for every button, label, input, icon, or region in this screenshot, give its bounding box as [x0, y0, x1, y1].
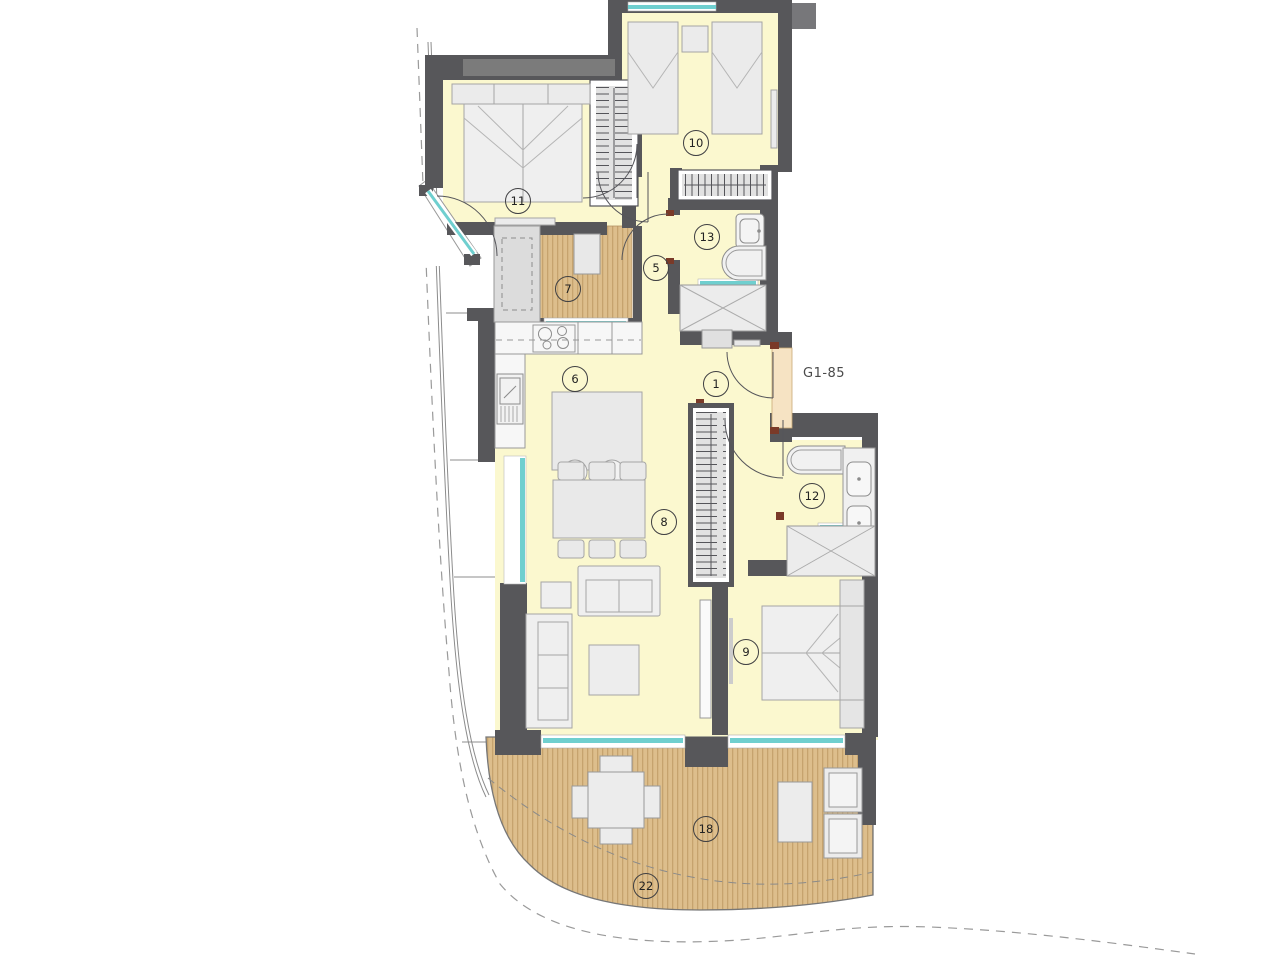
- room-marker-10: 10: [683, 130, 709, 156]
- room-marker-1: 1: [703, 371, 729, 397]
- unit-label: G1-85: [803, 366, 845, 381]
- room-marker-11: 11: [505, 188, 531, 214]
- room-marker-13: 13: [694, 224, 720, 250]
- room-marker-22: 22: [633, 873, 659, 899]
- room-marker-5: 5: [643, 255, 669, 281]
- wardrobe-bedroom-10: [678, 170, 772, 200]
- wardrobe-hall: [688, 403, 734, 587]
- room-marker-6: 6: [562, 366, 588, 392]
- floor-plan-page: G1-85 1 5 6 7 8 9 10 11 12 13 18 22: [0, 0, 1280, 960]
- floor-plan-drawing: [0, 0, 1280, 960]
- room-marker-18: 18: [693, 816, 719, 842]
- room-marker-7: 7: [555, 276, 581, 302]
- room-marker-12: 12: [799, 483, 825, 509]
- room-marker-8: 8: [651, 509, 677, 535]
- room-marker-9: 9: [733, 639, 759, 665]
